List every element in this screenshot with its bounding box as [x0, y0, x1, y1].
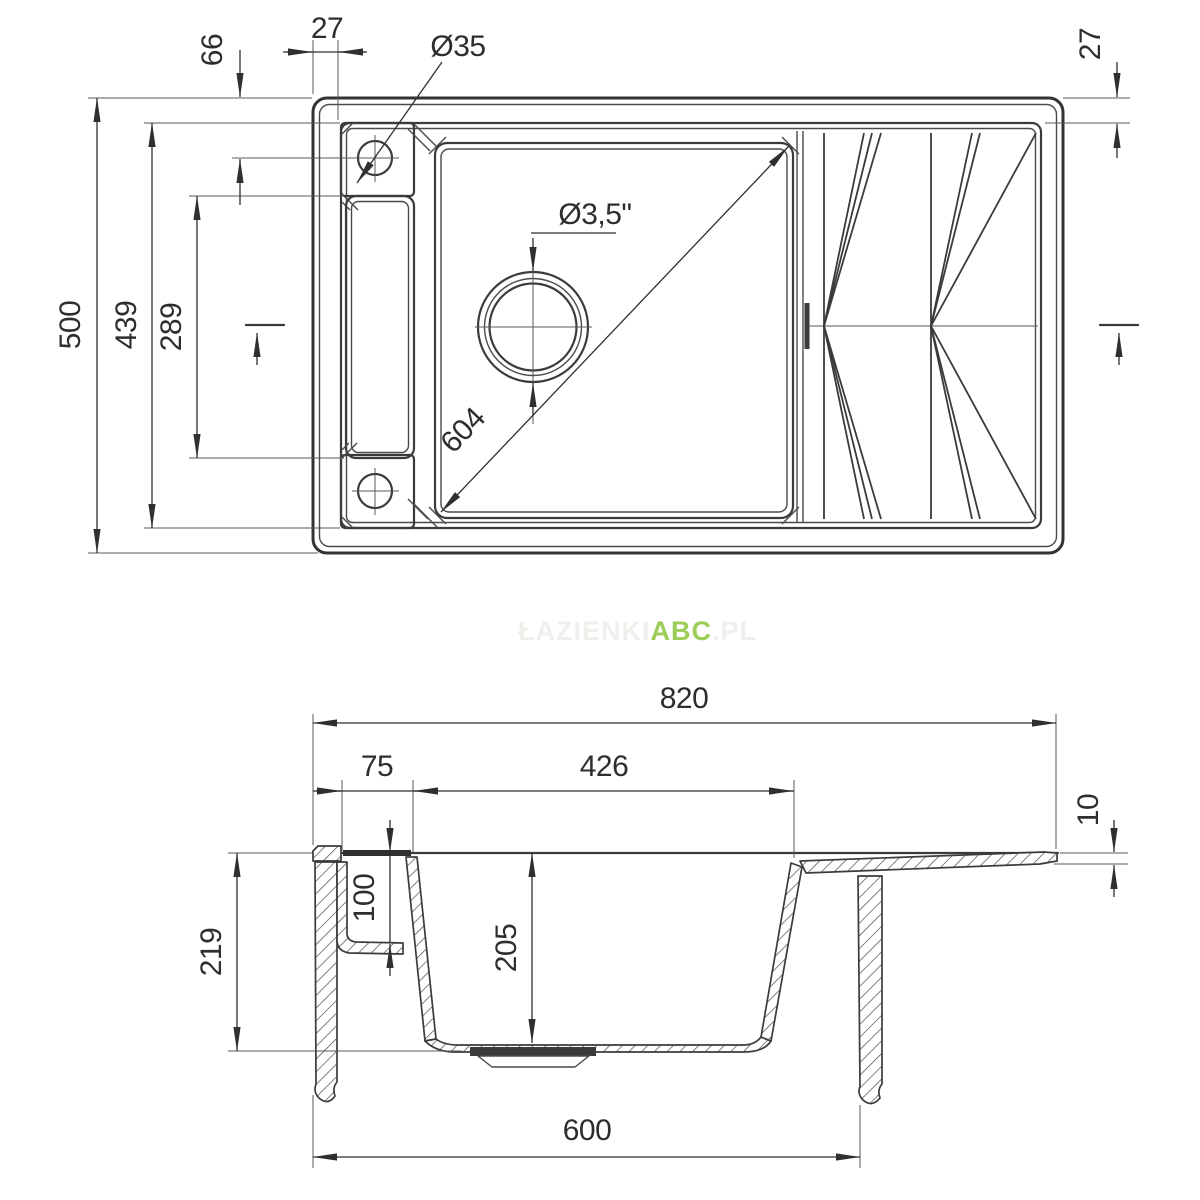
clamp-symbol-left — [246, 325, 284, 365]
dim-channel-length-289: 289 — [155, 196, 344, 458]
rim-lip-section — [313, 846, 341, 861]
dim-text-820: 820 — [660, 682, 709, 715]
top-view: 500 439 289 66 27 — [54, 12, 1138, 553]
dim-rim-width-439: 439 — [110, 123, 340, 528]
dim-text-439: 439 — [110, 301, 143, 350]
watermark-suffix: .PL — [712, 616, 757, 646]
dim-cabinet-width-600: 600 — [313, 1095, 860, 1168]
dim-text-66: 66 — [196, 34, 229, 66]
section-view: 820 75 426 10 219 — [195, 682, 1128, 1168]
cabinet-wall-left — [315, 862, 337, 1102]
drainboard-slab-section — [800, 852, 1057, 873]
dim-text-426: 426 — [580, 750, 629, 783]
dim-text-600: 600 — [563, 1114, 612, 1147]
dim-text-o35: Ø35 — [430, 30, 485, 63]
drain-outlet — [478, 1056, 589, 1067]
dim-text-219: 219 — [195, 928, 228, 977]
sink-drawing-svg: 500 439 289 66 27 — [0, 0, 1200, 1200]
dim-text-205: 205 — [490, 924, 523, 973]
cabinet-wall-right — [858, 876, 882, 1104]
dim-text-500: 500 — [54, 301, 87, 350]
dim-text-10: 10 — [1072, 794, 1105, 826]
dim-hole-offset-66: 66 — [196, 34, 352, 205]
tap-deck-channel — [346, 196, 414, 458]
clamp-symbol-right — [1100, 325, 1138, 365]
bowl-left-wall-section — [406, 857, 436, 1041]
dim-text-75: 75 — [361, 750, 393, 783]
watermark-accent: ABC — [651, 616, 713, 646]
drainboard — [806, 133, 1038, 519]
watermark: ŁAZIENKIABC.PL — [518, 616, 757, 646]
dim-bowl-depth-205: 205 — [490, 853, 532, 1043]
technical-drawing-page: 500 439 289 66 27 — [0, 0, 1200, 1200]
dim-text-27-right: 27 — [1074, 28, 1107, 60]
dim-overall-length-820: 820 — [313, 682, 1056, 849]
bowl-right-wall-section — [761, 863, 802, 1041]
dim-text-27-top: 27 — [311, 12, 343, 45]
dim-drain-diameter: Ø3,5" — [531, 198, 632, 416]
dim-deck-and-bowl-row: 75 426 — [313, 750, 794, 858]
dim-tap-hole-diameter: Ø35 — [357, 30, 486, 183]
watermark-prefix: ŁAZIENKI — [518, 616, 651, 646]
tap-pocket-bottom — [341, 443, 437, 528]
dim-text-289: 289 — [155, 303, 188, 352]
drain-flange — [470, 1047, 596, 1056]
dim-board-edge-10: 10 — [1054, 794, 1128, 897]
dim-rim-offset-right-27: 27 — [1045, 28, 1130, 158]
dim-text-100: 100 — [348, 874, 381, 923]
dim-text-604: 604 — [434, 401, 491, 459]
dim-text-drain: Ø3,5" — [558, 198, 631, 231]
